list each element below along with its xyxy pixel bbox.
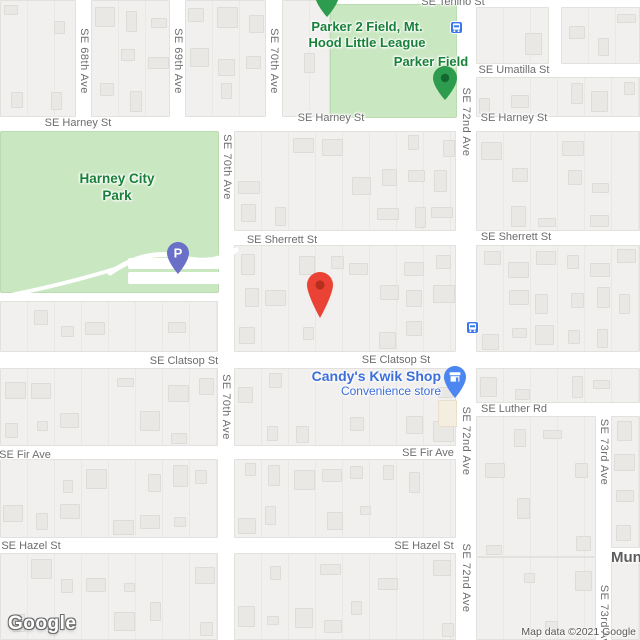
building-footprint	[383, 465, 394, 480]
building-footprint	[37, 421, 48, 431]
building-footprint	[406, 290, 422, 307]
city-block	[476, 77, 640, 117]
building-footprint	[480, 377, 497, 397]
building-footprint	[265, 290, 285, 306]
building-footprint	[3, 505, 22, 522]
building-footprint	[218, 59, 235, 76]
building-footprint	[408, 170, 425, 182]
building-footprint	[378, 578, 399, 590]
building-footprint	[303, 327, 314, 340]
building-footprint	[569, 26, 585, 40]
building-footprint	[5, 423, 17, 438]
destination-marker-icon[interactable]	[307, 272, 333, 318]
building-footprint	[571, 83, 583, 104]
building-footprint	[597, 329, 607, 349]
building-footprint	[508, 262, 529, 278]
building-footprint	[171, 433, 187, 443]
building-footprint	[409, 472, 420, 493]
building-footprint	[434, 170, 447, 192]
building-footprint	[320, 564, 340, 575]
city-block	[476, 131, 640, 231]
building-footprint	[265, 506, 276, 525]
street-label: SE 72nd Ave	[460, 88, 472, 157]
building-footprint	[352, 177, 371, 195]
building-footprint	[100, 83, 114, 96]
building-footprint	[598, 38, 609, 56]
building-footprint	[239, 327, 255, 344]
street-label: SE Hazel St	[394, 540, 453, 552]
poi-label-candys-kwik-shop[interactable]: Candy's Kwik Shop Convenience store	[281, 369, 441, 398]
city-block	[0, 0, 76, 117]
building-footprint	[4, 5, 18, 15]
building-footprint	[380, 285, 399, 300]
street-label: SE 70th Ave	[221, 134, 233, 200]
building-footprint	[140, 411, 160, 431]
building-footprint	[148, 474, 161, 492]
building-footprint	[567, 255, 580, 269]
building-footprint	[5, 382, 26, 399]
building-footprint	[406, 321, 422, 336]
building-footprint	[575, 571, 592, 590]
building-footprint	[616, 525, 631, 541]
building-footprint	[571, 293, 585, 308]
building-footprint	[624, 82, 634, 95]
street-label: SE Hazel St	[1, 540, 60, 552]
building-footprint	[592, 183, 609, 193]
building-footprint	[245, 463, 256, 476]
building-footprint	[168, 385, 189, 401]
building-footprint	[327, 512, 343, 529]
building-footprint	[575, 463, 588, 478]
building-footprint	[34, 310, 48, 325]
street-label: SE Umatilla St	[479, 64, 550, 76]
building-footprint	[349, 263, 369, 275]
building-footprint	[294, 470, 315, 490]
map-attribution: Map data ©2021 Google	[521, 626, 636, 638]
building-footprint	[238, 518, 257, 534]
building-footprint	[525, 33, 542, 55]
building-footprint	[616, 490, 634, 501]
street-label: SE Sherrett St	[247, 234, 317, 246]
building-footprint	[304, 53, 314, 74]
street-label: SE Fir Ave	[0, 449, 51, 461]
building-footprint	[11, 92, 23, 108]
building-footprint	[593, 380, 610, 389]
street-label: SE 68th Ave	[78, 28, 90, 94]
building-footprint	[377, 208, 399, 221]
building-footprint	[591, 91, 608, 112]
poi-label-parker-field[interactable]: Parker Field	[394, 54, 468, 70]
poi-label-harney-city-park[interactable]: Harney City Park	[71, 170, 163, 204]
building-footprint	[442, 623, 454, 637]
building-footprint	[536, 251, 556, 265]
building-footprint	[95, 7, 115, 28]
building-footprint	[217, 7, 238, 29]
city-block	[476, 416, 596, 557]
building-footprint	[576, 536, 590, 551]
building-footprint	[415, 207, 426, 228]
building-footprint	[512, 168, 527, 181]
commercial-building	[438, 400, 457, 427]
building-footprint	[60, 504, 79, 519]
building-footprint	[512, 328, 528, 338]
city-block	[234, 245, 456, 352]
building-footprint	[268, 465, 280, 486]
building-footprint	[433, 560, 451, 576]
building-footprint	[324, 620, 342, 634]
building-footprint	[114, 612, 135, 631]
building-footprint	[245, 288, 259, 307]
candys-name: Candy's Kwik Shop	[281, 369, 441, 384]
city-block	[234, 553, 456, 640]
building-footprint	[350, 417, 364, 431]
city-block	[234, 459, 456, 538]
building-footprint	[86, 578, 106, 592]
building-footprint	[269, 373, 282, 387]
street-label: SE 70th Ave	[268, 28, 280, 94]
building-footprint	[195, 470, 207, 483]
building-footprint	[382, 169, 397, 186]
building-footprint	[617, 249, 636, 263]
building-footprint	[121, 49, 135, 61]
city-block	[476, 368, 640, 403]
building-footprint	[51, 92, 62, 109]
street-label: SE Harney St	[45, 117, 112, 129]
building-footprint	[113, 520, 134, 535]
city-block	[185, 0, 266, 117]
building-footprint	[322, 139, 343, 155]
building-footprint	[275, 207, 286, 226]
building-footprint	[436, 255, 451, 270]
building-footprint	[443, 140, 455, 157]
building-footprint	[126, 11, 137, 32]
building-footprint	[61, 579, 73, 593]
city-block	[476, 7, 549, 64]
building-footprint	[195, 567, 215, 584]
building-footprint	[509, 290, 529, 306]
building-footprint	[151, 18, 167, 28]
building-footprint	[562, 141, 583, 155]
building-footprint	[60, 413, 79, 427]
building-footprint	[36, 513, 48, 531]
building-footprint	[360, 506, 371, 515]
parking-pin-icon[interactable]: P	[167, 242, 189, 274]
building-footprint	[572, 376, 583, 397]
transit-stop-icon[interactable]	[466, 321, 479, 334]
building-footprint	[481, 142, 501, 161]
city-block	[0, 301, 218, 352]
svg-text:P: P	[174, 246, 183, 261]
building-footprint	[124, 583, 135, 593]
building-footprint	[322, 469, 342, 482]
truncated-place-label: Mund	[611, 549, 640, 566]
transit-stop-icon[interactable]	[450, 21, 463, 34]
building-footprint	[517, 498, 530, 519]
building-footprint	[524, 573, 534, 583]
street-label: SE Harney St	[481, 112, 548, 124]
building-footprint	[85, 322, 106, 334]
building-footprint	[267, 426, 278, 441]
building-footprint	[173, 465, 188, 487]
city-block	[0, 459, 218, 538]
building-footprint	[86, 469, 107, 489]
street-label: SE Harney St	[298, 112, 365, 124]
building-footprint	[61, 326, 74, 337]
building-footprint	[482, 334, 500, 350]
building-footprint	[511, 95, 529, 109]
street-label: SE 69th Ave	[172, 28, 184, 94]
building-footprint	[140, 515, 160, 529]
street-label: SE 73rd Ave	[598, 419, 610, 485]
city-block	[476, 245, 640, 352]
building-footprint	[221, 83, 231, 99]
building-footprint	[433, 285, 454, 303]
building-footprint	[404, 262, 424, 276]
street-label: SE Tenino St	[421, 0, 484, 8]
building-footprint	[485, 463, 505, 479]
building-footprint	[238, 387, 253, 403]
street-label: SE 70th Ave	[220, 374, 232, 440]
building-footprint	[379, 332, 395, 348]
google-logo[interactable]: Google	[8, 613, 76, 635]
street-label: SE Luther Rd	[481, 403, 547, 415]
building-footprint	[617, 421, 632, 441]
building-footprint	[617, 14, 636, 23]
building-footprint	[514, 429, 525, 448]
building-footprint	[249, 15, 264, 33]
building-footprint	[168, 322, 186, 332]
building-footprint	[238, 606, 255, 627]
building-footprint	[199, 378, 214, 395]
building-footprint	[296, 426, 309, 442]
city-block	[611, 416, 640, 548]
map-canvas[interactable]: SE Tenino StSE Umatilla StSE Harney StSE…	[0, 0, 640, 640]
building-footprint	[238, 181, 259, 193]
building-footprint	[614, 454, 635, 471]
building-footprint	[350, 466, 363, 479]
building-footprint	[241, 254, 255, 275]
building-footprint	[543, 430, 561, 440]
building-footprint	[511, 206, 526, 227]
building-footprint	[174, 517, 186, 527]
building-footprint	[246, 56, 261, 69]
green-place-pin-north-icon[interactable]	[315, 0, 339, 17]
building-footprint	[270, 566, 280, 580]
city-block	[91, 0, 170, 117]
city-block	[282, 0, 330, 117]
building-footprint	[267, 616, 279, 625]
building-footprint	[200, 622, 213, 636]
building-footprint	[538, 218, 556, 227]
building-footprint	[130, 91, 142, 111]
building-footprint	[535, 294, 548, 314]
building-footprint	[293, 138, 314, 153]
street-label: SE Clatsop St	[150, 355, 218, 367]
building-footprint	[117, 378, 134, 387]
street-label: SE 72nd Ave	[460, 407, 472, 476]
building-footprint	[590, 215, 610, 227]
city-block	[0, 368, 218, 446]
building-footprint	[597, 287, 610, 308]
candys-shop-pin-icon[interactable]	[444, 366, 466, 398]
street-label: SE 72nd Ave	[460, 544, 472, 613]
building-footprint	[190, 48, 209, 67]
building-footprint	[568, 170, 582, 185]
building-footprint	[54, 21, 65, 35]
building-footprint	[31, 383, 51, 400]
building-footprint	[241, 204, 255, 222]
building-footprint	[31, 559, 52, 579]
city-block	[561, 7, 640, 64]
street-label: SE Clatsop St	[362, 354, 430, 366]
building-footprint	[408, 135, 419, 150]
building-footprint	[351, 601, 361, 615]
building-footprint	[406, 416, 423, 435]
street-label: SE Fir Ave	[402, 447, 454, 459]
poi-label-parker2-field[interactable]: Parker 2 Field, Mt. Hood Little League	[300, 19, 434, 51]
building-footprint	[63, 480, 73, 493]
building-footprint	[486, 545, 502, 555]
building-footprint	[515, 389, 530, 400]
building-footprint	[431, 207, 452, 217]
building-footprint	[148, 57, 168, 68]
building-footprint	[484, 251, 501, 266]
building-footprint	[295, 608, 313, 627]
parker-field-pin-icon[interactable]	[433, 66, 457, 100]
building-footprint	[331, 256, 344, 269]
city-block	[234, 131, 456, 231]
building-footprint	[150, 602, 161, 621]
street-label: SE Sherrett St	[481, 231, 551, 243]
building-footprint	[535, 325, 554, 345]
building-footprint	[590, 263, 609, 278]
candys-category: Convenience store	[281, 384, 441, 398]
building-footprint	[188, 8, 204, 22]
building-footprint	[568, 330, 581, 344]
building-footprint	[619, 294, 630, 314]
